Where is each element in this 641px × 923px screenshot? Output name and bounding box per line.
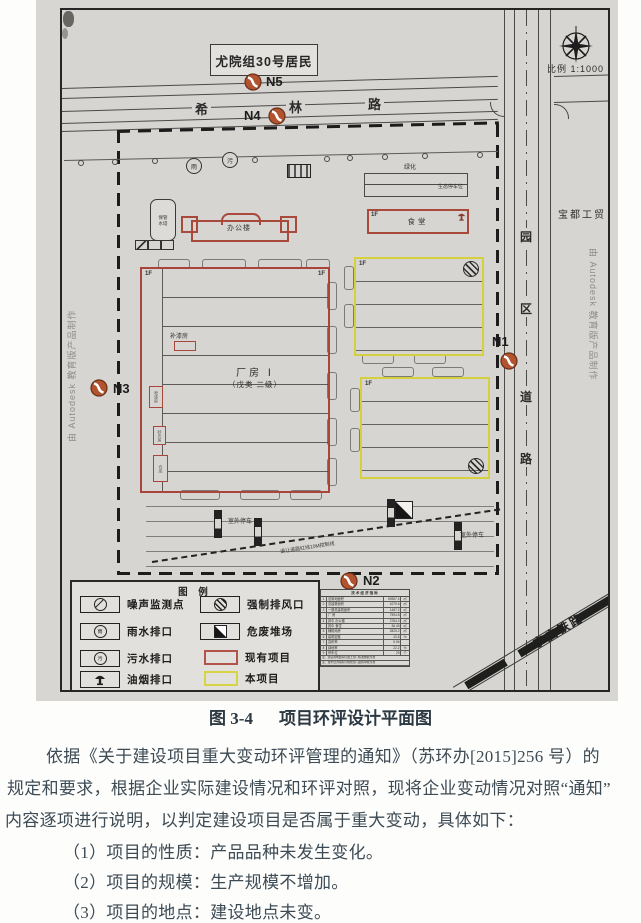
forced-exhaust-icon [200,596,240,613]
new-project-swatch [204,671,238,686]
indicator-table-title: 技术经济指标 [321,590,409,597]
resident-area-label: 尤院组30号居民 [210,44,318,76]
body-list-item: （3）项目的地点：建设地点未变。 [63,898,331,923]
road-name-char: 希 [192,99,211,118]
site-boundary [117,130,120,575]
document-page: 比例 1:1000 尤院组30号居民 希 林 路 园 区 道 路 宝都工贸 由 … [0,0,641,921]
body-line: 依据《关于建设项目重大变动环评管理的通知》（苏环办[2015]256 号）的 [46,742,600,767]
noise-monitor-point-n3 [90,379,108,397]
road-name-char: 路 [517,450,535,467]
noise-monitor-icon [80,596,120,613]
site-boundary [496,124,499,575]
neighbor-company-label: 宝都工贸 [558,206,606,221]
forced-exhaust-icon [463,261,479,277]
workshop-1-building: 1F 1F 补漆房 厂房 Ⅰ （戊类 二级） 喷漆房 砂光房 仓库 [140,267,330,493]
body-list-item: （2）项目的规模：生产规模不增加。 [63,868,349,893]
light-pole [387,499,395,527]
map-scale-label: 比例 1:1000 [492,62,604,75]
green-label: 绿化 [404,162,416,171]
marker-label: N4 [244,108,261,123]
legend-label: 强制排风口 [247,597,305,612]
paint-repair-room [174,341,196,351]
fence-post [347,155,353,161]
workshop-class: （戊类 二级） [182,379,328,390]
storage-water-tower: 保管 水塔 [150,199,176,241]
site-boundary [117,572,499,575]
fence-post [477,152,483,158]
existing-project-swatch [204,650,238,665]
road-name-char: 道 [517,388,535,405]
road-line [550,10,551,690]
floor-label: 1F [359,261,366,267]
floor-label: 1F [365,381,372,387]
figure-title: 项目环评设计平面图 [279,709,432,728]
fence-line [64,151,498,161]
road-corner [490,102,505,117]
fence-post [152,158,158,164]
legend-box: 图 例 噪声监测点 雨 雨水排口 污 污水排口 油烟排口 强制排风口 [70,580,320,692]
dock-tab [382,367,414,377]
small-structure [161,240,174,250]
sewage-outlet-marker: 污 [222,152,238,168]
figure-number: 图 3-4 [209,709,253,728]
spray-room: 喷漆房 [149,386,163,408]
fence-post [422,153,428,159]
oil-fume-outlet-icon [457,211,466,222]
road-centerline [526,10,527,690]
road-name-char: 林 [286,97,305,116]
legend-label: 油烟排口 [127,672,173,687]
road-line [554,74,608,77]
road-name-char: 园 [517,228,535,245]
legend-label: 污水排口 [127,651,173,666]
floor-label: 1F [318,271,325,277]
rain-outlet-marker: 雨 [186,158,202,174]
rain-outlet-icon: 雨 [80,623,120,640]
sanding-room: 砂光房 [153,426,166,445]
legend-label: 现有项目 [245,650,291,665]
fence-post [382,154,388,160]
workshop-name: 厂房 Ⅰ [182,364,328,379]
warehouse-room: 仓库 [153,455,168,482]
office-building: 办公楼 [181,213,297,240]
indicator-table-rows: 1总用地面积50967.4㎡ 2总建筑面积4279.6㎡ 3一期总建筑面积148… [321,597,409,656]
body-list-item: （1）项目的性质：产品品种未发生变化。 [63,838,383,863]
figure-caption: 图 3-4项目环评设计平面图 [0,704,641,729]
autodesk-watermark: 由 Autodesk 教育版产品制作 [587,248,600,381]
light-pole [214,510,222,538]
small-structure [148,240,161,250]
sewage-outlet-icon: 污 [80,650,120,667]
outdoor-parking-label: 室外停车 [228,516,252,525]
gate-house [287,164,311,178]
site-plan-map: 比例 1:1000 尤院组30号居民 希 林 路 园 区 道 路 宝都工贸 由 … [60,8,610,692]
body-line: 规定和要求，根据企业实际建设情况和环评对照，现将企业变动情况对照“通知” [7,774,611,799]
road-name-char: 区 [517,300,535,317]
forced-exhaust-icon [468,458,484,474]
dock-tab [350,388,360,412]
autodesk-watermark: 由 Autodesk 教育版产品制作 [65,309,78,442]
fence-post [324,156,330,162]
eco-parking-label: 生态停车位 [438,183,463,190]
small-structure [135,240,148,250]
dock-tab [432,367,464,377]
fence-post [78,160,84,166]
legend-label: 本项目 [245,671,280,686]
road-line [514,10,515,690]
dock-tab [344,304,354,328]
paint-repair-room-label: 补漆房 [170,331,188,340]
marker-label: N3 [113,381,130,396]
dock-tab [344,266,354,290]
fence-post [112,159,118,165]
floor-label: 1F [145,271,152,277]
noise-monitor-point-n1 [500,352,518,370]
marker-label: N2 [363,573,380,588]
scan-smudge [63,11,74,27]
marker-label: N1 [492,334,509,349]
indicator-table: 技术经济指标 1总用地面积50967.4㎡ 2总建筑面积4279.6㎡ 3一期总… [320,589,410,667]
canteen-building: 1F 食堂 [367,209,469,234]
oil-fume-outlet-icon [80,671,120,688]
road-line [554,100,608,103]
legend-label: 雨水排口 [127,624,173,639]
road-line [538,10,539,690]
table-note: 注：技术经济指标以规划部门最终审批为准 [321,661,409,666]
legend-label: 危废堆场 [247,624,293,639]
road-name-char: 路 [365,94,384,113]
noise-monitor-point-n2 [340,572,358,590]
outdoor-parking-label: 室外停车 [460,530,484,539]
dock-tab [350,428,360,452]
scan-smudge [62,28,68,39]
hazard-waste-icon [200,623,240,640]
noise-monitor-point-n4 [268,107,286,125]
body-line: 内容逐项进行说明，以判定建设项目是否属于重大变动，具体如下： [5,806,524,831]
road-corner [554,104,569,119]
legend-label: 噪声监测点 [127,597,185,612]
hazard-waste-yard-icon [395,501,413,519]
noise-monitor-point-n5 [244,73,262,91]
fence-post [252,157,258,163]
new-building-2: 1F [360,377,490,479]
new-building-1: 1F [354,257,484,356]
marker-label: N5 [266,74,283,89]
light-pole [254,518,262,546]
